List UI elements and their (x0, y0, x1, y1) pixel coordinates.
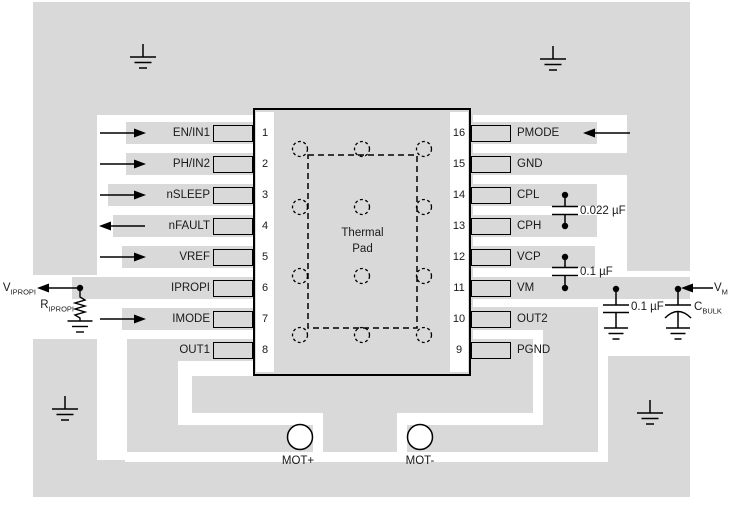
pin-number-7: 7 (254, 312, 276, 326)
via-icon (293, 200, 308, 215)
pin-label-out2: OUT2 (517, 312, 597, 326)
via-icon (417, 200, 432, 215)
pin-label-gnd: GND (517, 157, 597, 171)
ground-bottom-right-icon (637, 400, 663, 424)
pin-label-vref: VREF (90, 250, 210, 264)
pin-number-5: 5 (254, 250, 276, 264)
via-icon (293, 142, 308, 157)
pin-label-pmode: PMODE (517, 126, 597, 140)
pin-label-imode: IMODE (90, 312, 210, 326)
via-icon (417, 328, 432, 343)
ground-top-left-icon (130, 44, 156, 68)
via-icon (417, 142, 432, 157)
pin-label-vm: VM (517, 281, 597, 295)
thermal-pad-label-line1: Thermal (308, 226, 417, 242)
ground-bottom-left-icon (52, 396, 78, 420)
pin-label-cph: CPH (517, 219, 597, 233)
cap-cp-value: 0.022 µF (580, 204, 626, 218)
pin-number-12: 12 (448, 250, 470, 264)
via-icon (293, 328, 308, 343)
pin-number-13: 13 (448, 219, 470, 233)
v-m-main: V (714, 282, 722, 294)
v-ipropi-main: V (3, 282, 11, 294)
pin-label-en-in1: EN/IN1 (90, 126, 210, 140)
pin-number-2: 2 (254, 157, 276, 171)
pin-number-15: 15 (448, 157, 470, 171)
r-ipropi-main: R (40, 299, 48, 311)
via-icon (355, 269, 370, 284)
pin-label-out1: OUT1 (90, 343, 210, 357)
c-bulk-sub: BULK (702, 306, 722, 315)
thermal-pad-label-line2: Pad (308, 242, 417, 258)
pin-label-pgnd: PGND (517, 343, 597, 357)
via-icon (355, 200, 370, 215)
pin-number-3: 3 (254, 188, 276, 202)
arrowhead-v-m (681, 284, 693, 293)
pin-number-16: 16 (448, 126, 470, 140)
pin-number-9: 9 (448, 343, 470, 357)
v-m-sub: M (722, 287, 728, 296)
mot-plus-label: MOT+ (272, 454, 324, 468)
mot-plus-pad (288, 425, 313, 450)
capacitor-bulk-icon (665, 289, 691, 339)
pin-label-cpl: CPL (517, 188, 597, 202)
pin-number-6: 6 (254, 281, 276, 295)
mot-minus-label: MOT- (394, 454, 446, 468)
arrowhead-v-ipropi (37, 284, 49, 293)
ground-top-right-icon (540, 46, 566, 70)
r-ipropi-sub: IPROPI (49, 304, 74, 313)
pin-label-nsleep: nSLEEP (90, 188, 210, 202)
r-ipropi-label: RIPROPI (14, 298, 74, 312)
capacitor-vm-icon (603, 289, 629, 339)
c-bulk-label: CBULK (694, 300, 722, 314)
pin-number-8: 8 (254, 343, 276, 357)
pcb-layout-diagram: EN/IN1 PH/IN2 nSLEEP nFAULT VREF IPROPI … (0, 0, 730, 505)
cap-vm-value: 0.1 µF (631, 300, 664, 314)
v-m-label: VM (714, 281, 728, 295)
pin-number-14: 14 (448, 188, 470, 202)
via-icon (417, 269, 432, 284)
v-ipropi-label: VIPROPI (0, 281, 36, 295)
cap-vcp-value: 0.1 µF (580, 265, 613, 279)
pin-number-10: 10 (448, 312, 470, 326)
pin-label-ph-in2: PH/IN2 (90, 157, 210, 171)
via-icon (293, 269, 308, 284)
via-icon (355, 328, 370, 343)
thermal-pad-label: Thermal Pad (308, 226, 417, 257)
pin-number-4: 4 (254, 219, 276, 233)
pin-number-11: 11 (448, 281, 470, 295)
pin-label-ipropi: IPROPI (90, 281, 210, 295)
pin-label-vcp: VCP (517, 250, 597, 264)
v-ipropi-sub: IPROPI (11, 287, 36, 296)
mot-minus-pad (408, 425, 433, 450)
pin-label-nfault: nFAULT (90, 219, 210, 233)
pin-number-1: 1 (254, 126, 276, 140)
